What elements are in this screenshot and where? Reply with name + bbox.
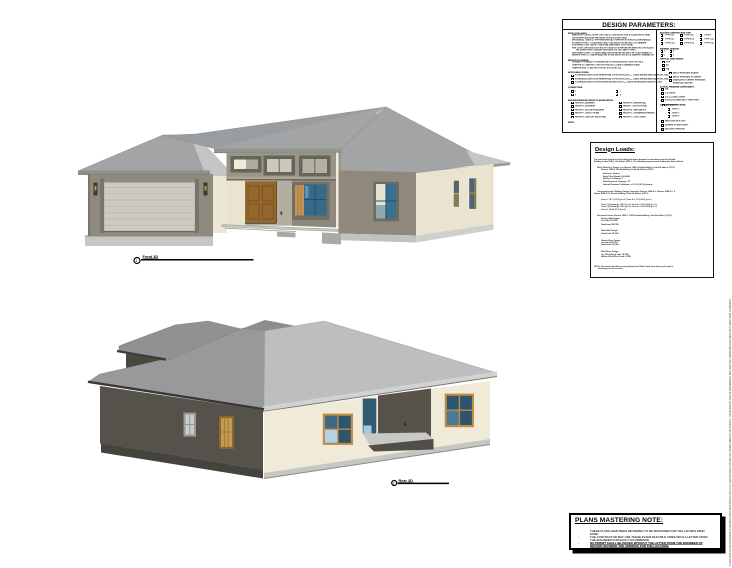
svg-text:1: 1 (135, 259, 137, 263)
svg-text:Front 3D: Front 3D (143, 255, 159, 259)
svg-text:S-203 9:54:18 AM 5/14/2019: S-203 9:54:18 AM 5/14/2019 K:\2019\19-04… (728, 299, 732, 566)
svg-text:2: 2 (393, 481, 395, 485)
svg-text:Rear 3D: Rear 3D (399, 479, 414, 483)
